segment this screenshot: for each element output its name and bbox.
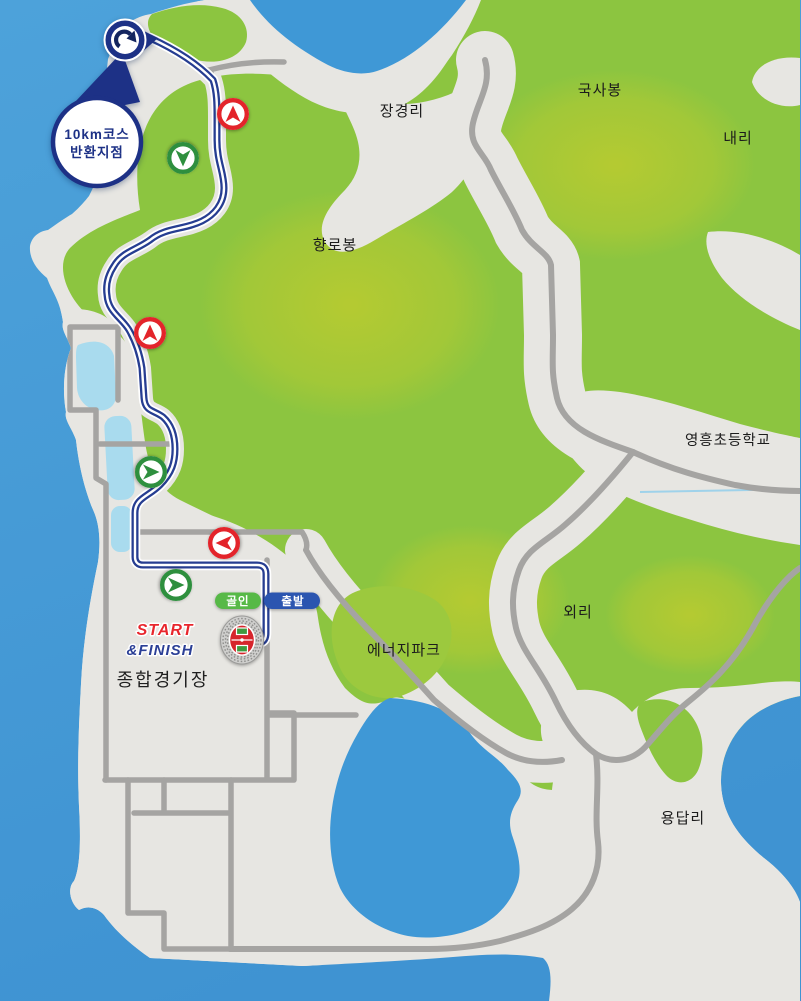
callout-bubble	[53, 98, 141, 186]
place-label-janggyeongri: 장경리	[380, 103, 424, 120]
start-label: START	[137, 622, 194, 639]
course-arrow-right-2	[160, 569, 192, 601]
place-label-oeri: 외리	[563, 604, 593, 621]
place-label-naeri: 내리	[723, 130, 753, 147]
finish-label: &FINISH	[127, 642, 194, 659]
stadium-icon	[221, 616, 264, 664]
course-arrow-down-1	[167, 142, 199, 174]
callout-line1: 10km코스	[64, 127, 129, 142]
stadium-name-label: 종합경기장	[117, 670, 210, 690]
pond	[111, 506, 132, 552]
finish-badge: 골인	[215, 593, 261, 610]
course-arrow-left-1	[208, 527, 240, 559]
place-label-yongdapri: 용답리	[661, 810, 705, 827]
callout-line2: 반환지점	[70, 144, 124, 160]
stadium-goal-bottom	[237, 646, 248, 653]
course-arrow-up-2	[134, 317, 166, 349]
start-badge-label: 출발	[281, 594, 304, 608]
finish-badge-label: 골인	[226, 594, 249, 608]
stadium-goal-top	[237, 628, 248, 635]
course-arrow-right-1	[135, 456, 167, 488]
place-label-hyangrobong: 향로봉	[313, 237, 357, 254]
pond	[76, 342, 116, 411]
map-canvas: 골인 출발 10km코스 반환지점 장경리	[0, 0, 801, 1001]
course-map: 골인 출발 10km코스 반환지점 장경리	[0, 0, 801, 1001]
place-label-guksabong: 국사봉	[578, 82, 622, 99]
place-label-school: 영흥초등학교	[685, 431, 771, 449]
start-badge: 출발	[264, 593, 320, 610]
place-label-energypark: 에너지파크	[367, 642, 441, 659]
hill-highlight	[605, 555, 775, 675]
course-arrow-up-1	[217, 98, 249, 130]
